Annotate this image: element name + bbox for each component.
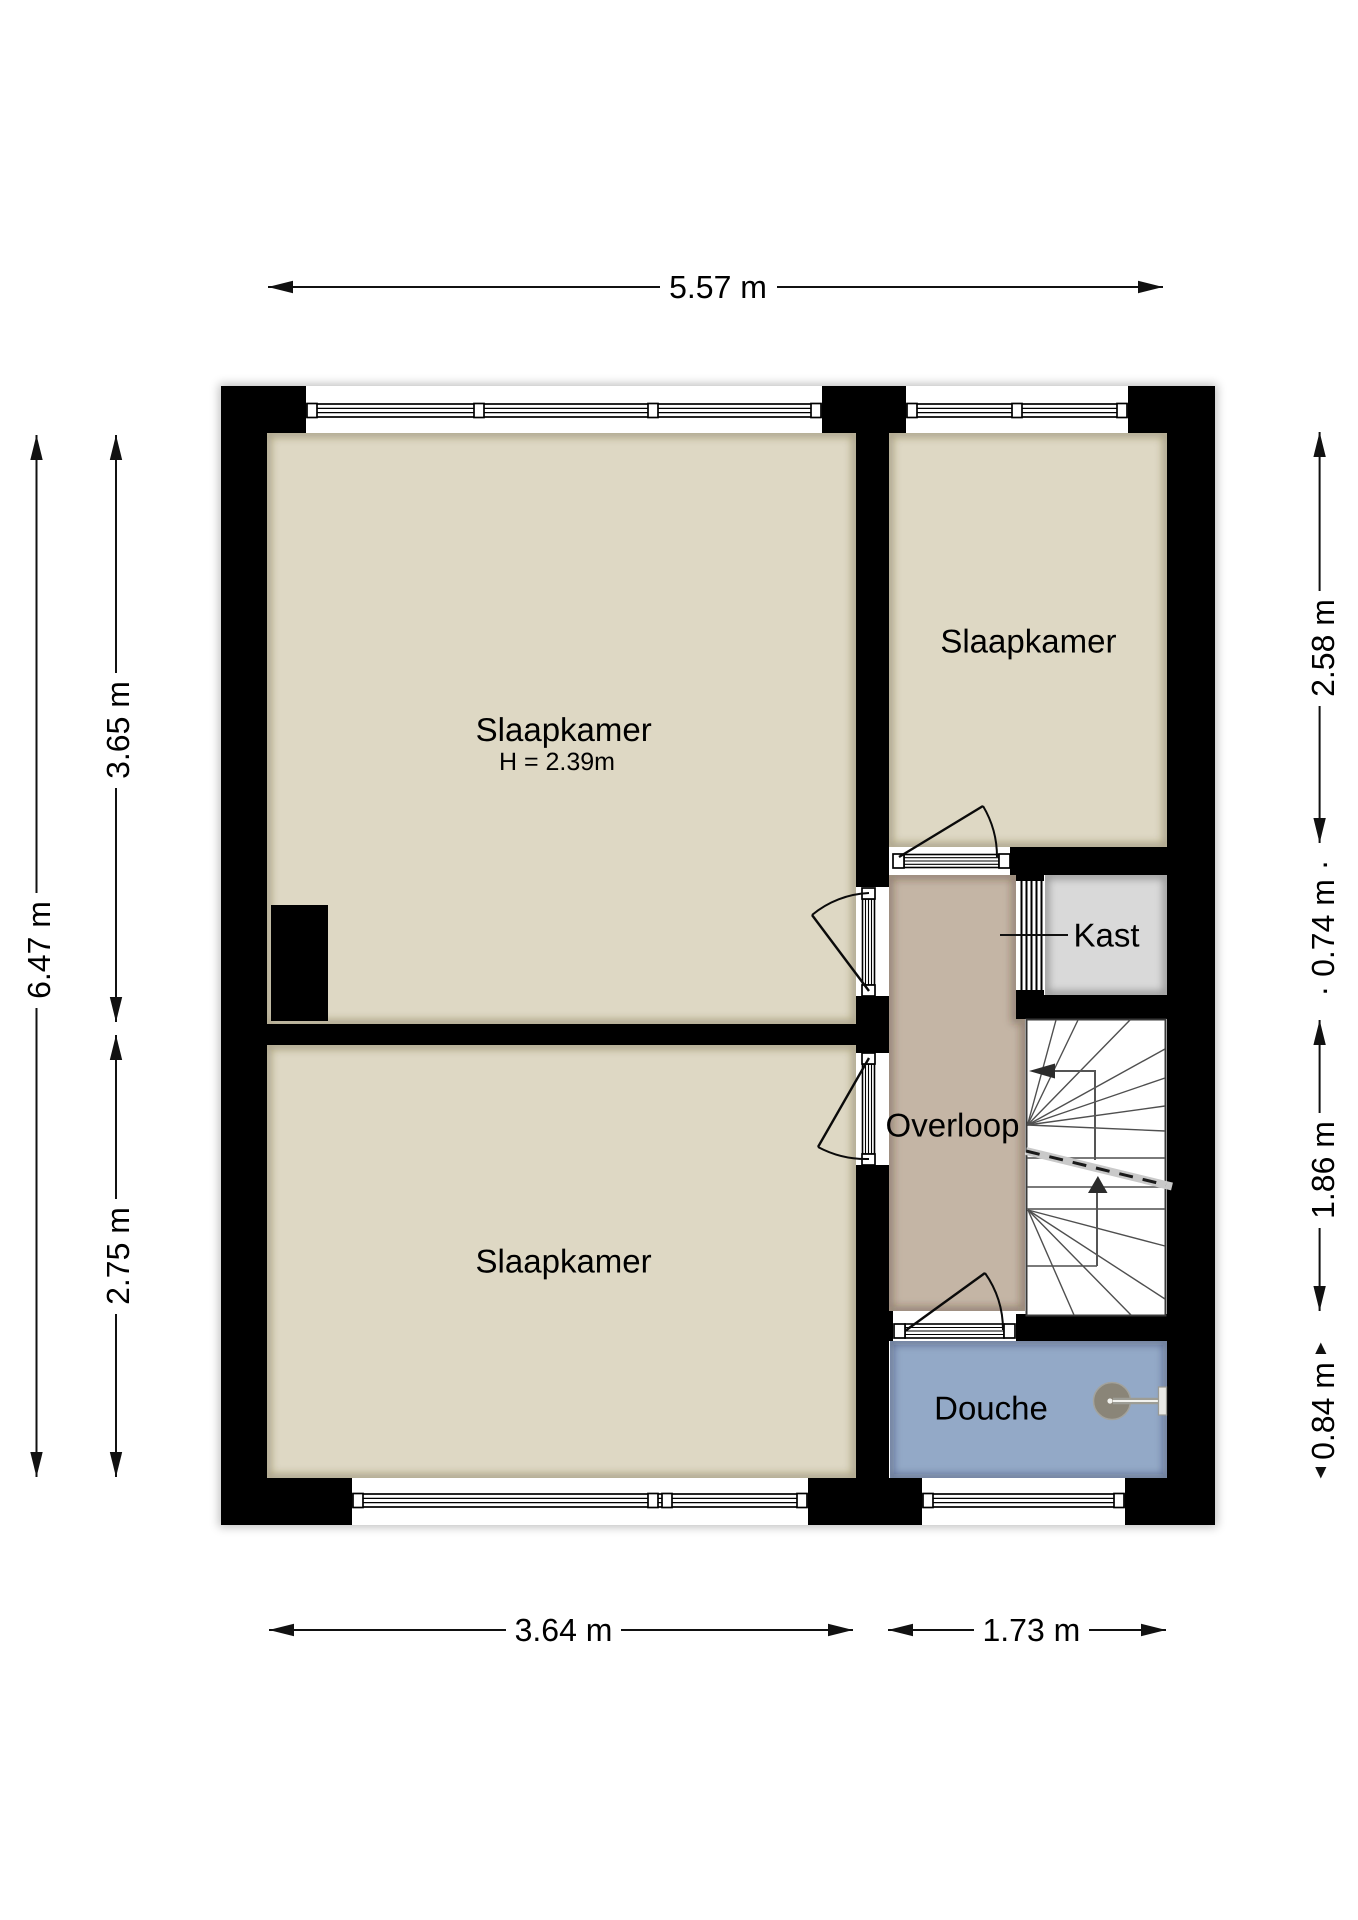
svg-text:Slaapkamer: Slaapkamer [940, 623, 1116, 660]
svg-text:3.64 m: 3.64 m [515, 1612, 613, 1648]
svg-text:2.75 m: 2.75 m [100, 1207, 136, 1305]
svg-text:1.73 m: 1.73 m [982, 1612, 1080, 1648]
svg-text:Kast: Kast [1073, 917, 1139, 954]
svg-text:3.65 m: 3.65 m [100, 681, 136, 779]
svg-text:Slaapkamer: Slaapkamer [476, 711, 652, 748]
svg-text:H = 2.39m: H = 2.39m [499, 748, 615, 776]
svg-text:Douche: Douche [934, 1390, 1048, 1427]
svg-text:Slaapkamer: Slaapkamer [476, 1243, 652, 1280]
svg-text:Overloop: Overloop [886, 1107, 1020, 1144]
svg-text:5.57 m: 5.57 m [669, 269, 767, 305]
svg-text:1.86 m: 1.86 m [1305, 1121, 1341, 1219]
svg-text:6.47 m: 6.47 m [21, 901, 57, 999]
svg-text:· 0.74 m ·: · 0.74 m · [1305, 860, 1341, 997]
svg-text:2.58 m: 2.58 m [1305, 599, 1341, 697]
svg-text:0.84 m: 0.84 m [1305, 1362, 1341, 1460]
